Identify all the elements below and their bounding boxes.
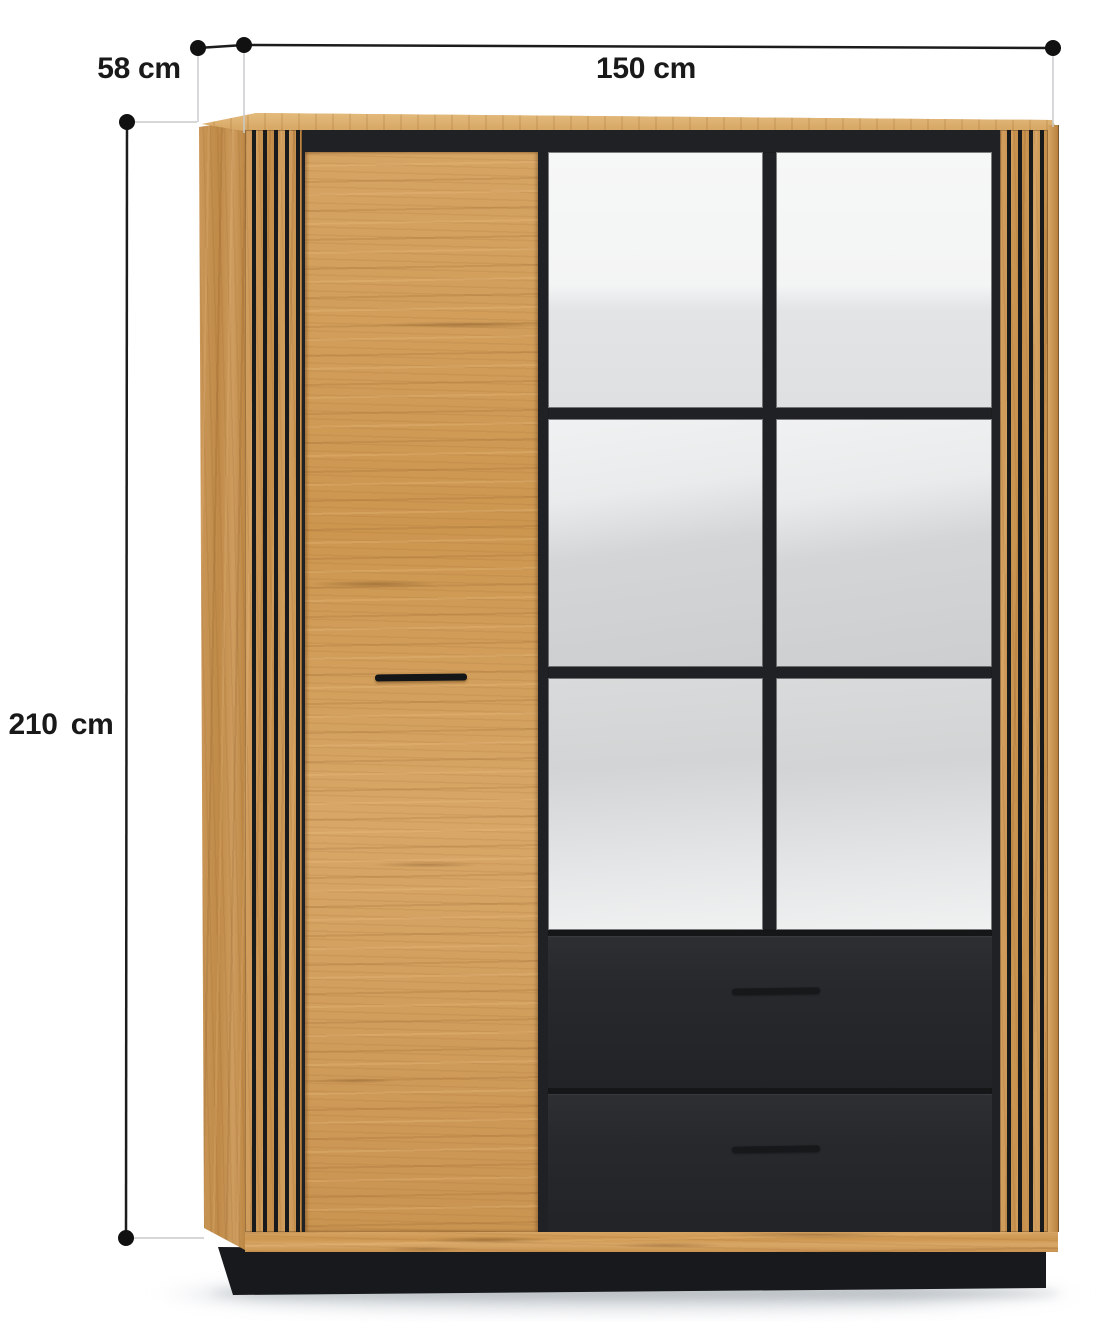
cabinet-side-panel: [197, 119, 245, 1250]
glass-pane: [776, 419, 992, 667]
glass-pane: [548, 678, 763, 930]
glass-pane: [548, 419, 763, 667]
depth-dimension-line: [198, 45, 244, 48]
left-slat-panel: [245, 130, 302, 1232]
drawer-handle: [732, 1145, 820, 1152]
cabinet-right-edge: [1048, 125, 1059, 1232]
width-dimension-line: [244, 45, 1053, 48]
wood-door: [305, 152, 538, 1232]
dimension-endpoint-dot: [119, 114, 135, 130]
drawer-section: [548, 930, 992, 1244]
dimension-endpoint-dot: [236, 37, 252, 53]
dimension-endpoint-dot: [190, 40, 206, 56]
drawer-handle: [732, 987, 820, 994]
dimension-endpoint-dot: [118, 1230, 134, 1246]
height-dimension-line: [126, 122, 127, 1238]
glass-pane: [776, 678, 992, 930]
glass-door-section: [548, 152, 992, 930]
door-handle: [375, 674, 467, 682]
dimension-endpoint-dot: [1045, 40, 1061, 56]
cabinet-bottom-rail: [245, 1232, 1058, 1252]
furniture-dimension-diagram: 150 cm 58 cm 210 cm: [0, 0, 1100, 1322]
height-dimension-label: 210 cm: [6, 708, 116, 742]
depth-dimension-label: 58 cm: [94, 52, 184, 86]
drawer-top: [548, 936, 992, 1088]
cabinet-top-edge: [196, 112, 1058, 132]
glass-pane: [776, 152, 992, 408]
glass-pane: [548, 152, 763, 408]
width-dimension-label: 150 cm: [596, 52, 696, 86]
drawer-bottom: [548, 1094, 992, 1240]
right-slat-panel: [1000, 130, 1048, 1232]
